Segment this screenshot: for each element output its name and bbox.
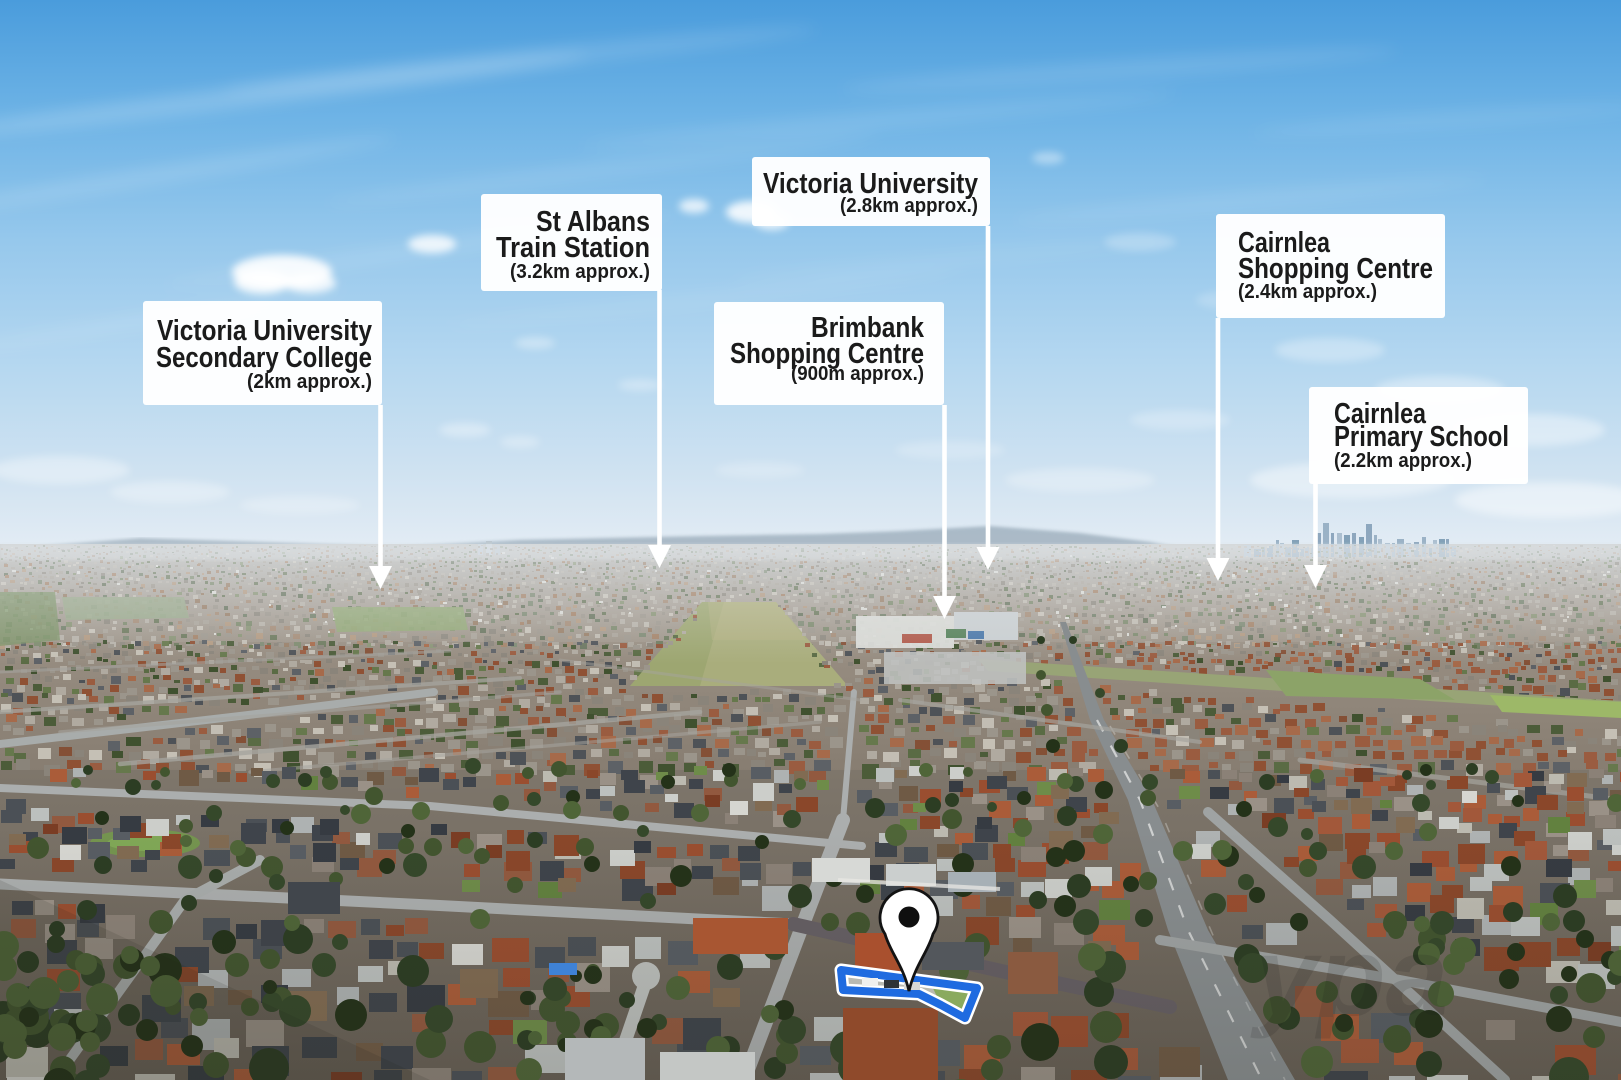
svg-text:Secondary College: Secondary College <box>156 342 372 374</box>
svg-text:(2.4km approx.): (2.4km approx.) <box>1238 281 1377 303</box>
svg-text:(3.2km approx.): (3.2km approx.) <box>510 261 650 283</box>
svg-text:ypa: ypa <box>1250 914 1448 1039</box>
svg-text:Primary School: Primary School <box>1334 421 1509 453</box>
svg-text:(900m approx.): (900m approx.) <box>791 363 924 385</box>
svg-text:Train Station: Train Station <box>496 232 650 264</box>
svg-text:(2km approx.): (2km approx.) <box>247 371 372 393</box>
svg-text:(2.2km approx.): (2.2km approx.) <box>1334 450 1472 472</box>
svg-text:(2.8km approx.): (2.8km approx.) <box>840 195 978 217</box>
